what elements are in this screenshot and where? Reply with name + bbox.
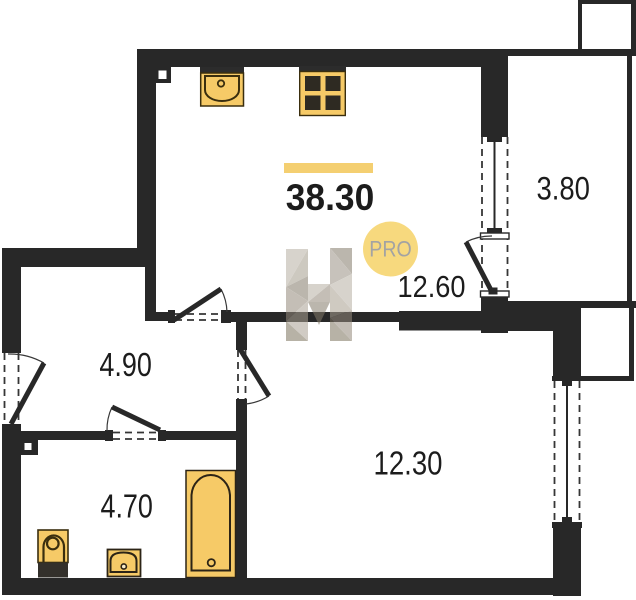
svg-text:4.90: 4.90 xyxy=(99,346,152,383)
svg-text:4.70: 4.70 xyxy=(100,488,153,525)
svg-text:12.30: 12.30 xyxy=(374,445,443,482)
svg-text:38.30: 38.30 xyxy=(286,177,375,218)
svg-text:PRO: PRO xyxy=(369,237,412,262)
svg-text:12.60: 12.60 xyxy=(398,270,466,304)
svg-text:3.80: 3.80 xyxy=(536,171,590,207)
